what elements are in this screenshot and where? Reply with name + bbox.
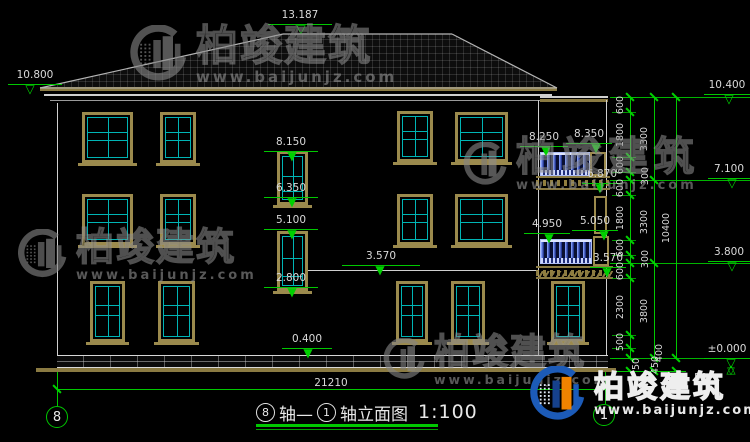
title-axis-from: 8: [256, 403, 275, 422]
elevation-marker-label: 5.050: [572, 216, 618, 228]
elevation-marker-triangle: ▼: [541, 145, 550, 157]
dim-segment-label: 300: [641, 250, 651, 268]
dim-segment-label: 600: [616, 155, 626, 173]
elevation-marker-triangle: ▼: [287, 228, 296, 240]
drawing-title: 8 轴— 1 轴立面图 1:100: [256, 401, 478, 423]
cad-elevation-drawing: 21210 8 1 8 轴— 1 轴立面图 1:100 柏竣建筑 www.bai…: [0, 0, 750, 442]
elevation-marker-triangle: ▼: [544, 232, 553, 244]
dim-total-label: 10400: [662, 212, 672, 242]
dim-chain-line: [654, 97, 655, 358]
elevation-marker-triangle: ▼: [602, 266, 611, 278]
elevation-marker-triangle: ▼: [591, 142, 600, 154]
elevation-marker-triangle: ▼: [287, 150, 296, 162]
brand-website: www.baijunjz.com: [594, 403, 750, 418]
elevation-marker-label: 7.100: [708, 164, 750, 176]
dim-segment-label: 3300: [640, 209, 650, 233]
elevation-marker-triangle: ▽: [727, 260, 736, 272]
brand-name: 柏竣建筑: [594, 373, 750, 403]
dim-segment-label: 3300: [640, 126, 650, 150]
elevation-marker-label: 5.100: [264, 215, 318, 227]
dim-chain-line: [676, 97, 677, 358]
dim-segment-label: 600: [616, 95, 626, 113]
elevation-marker-label: 13.187: [268, 10, 332, 22]
title-axis-to: 1: [317, 403, 336, 422]
elevation-marker-triangle: ▼: [599, 229, 608, 241]
dim-segment-label: 600: [616, 178, 626, 196]
elevation-marker-label: 6.350: [264, 183, 318, 195]
elevation-marker-triangle: ▼: [287, 286, 296, 298]
elevation-marker-triangle: ▼: [375, 264, 384, 276]
elevation-marker-label: 3.570: [342, 251, 420, 263]
elevation-marker-triangle: ▽: [296, 23, 305, 35]
dim-segment-label: 1800: [616, 205, 626, 229]
elevation-marker-label: 3.800: [708, 247, 750, 259]
elevation-marker-line: [8, 84, 62, 85]
elevation-marker-triangle: ▽: [724, 93, 733, 105]
elevation-marker-triangle: ▼: [303, 347, 312, 359]
elevation-marker-triangle: ▼: [287, 196, 296, 208]
dim-segment-label: 1800: [616, 122, 626, 146]
elevation-marker-label: 8.350: [566, 129, 612, 141]
elevation-marker-label: 8.250: [520, 132, 568, 144]
dim-segment-label: 500: [616, 332, 626, 350]
title-scale: 1:100: [418, 401, 478, 423]
dim-segment-label: 300: [641, 167, 651, 185]
brand-logo-icon: [528, 366, 586, 424]
elevation-marker-line: [572, 230, 618, 231]
elevation-marker-label: 2.800: [264, 273, 318, 285]
dim-segment-label: 600: [616, 261, 626, 279]
elevation-marker-line: [566, 143, 612, 144]
dim-segment-label: 600: [616, 238, 626, 256]
elevation-marker-triangle: ▼: [595, 182, 604, 194]
dim-segment-label: 2300: [616, 294, 626, 318]
elevation-marker-label: ±0.000: [704, 344, 750, 356]
dim-segment-label: 3800: [640, 298, 650, 322]
elevation-marker-triangle: ▽: [727, 177, 736, 189]
dim-chain-line: [630, 97, 631, 358]
elevation-marker-label: 10.400: [704, 80, 750, 92]
elevation-marker-label: 0.400: [282, 334, 332, 346]
elevation-marker-label: 8.150: [264, 137, 318, 149]
elevation-marker-label: 4.950: [524, 219, 570, 231]
elevation-marker-label: 10.800: [8, 70, 62, 82]
brand-logo-footer: 柏竣建筑 www.baijunjz.com: [528, 366, 750, 424]
elevation-marker-triangle: ▽: [25, 83, 34, 95]
title-mid: 轴—: [279, 400, 313, 425]
title-tail: 轴立面图: [340, 400, 408, 425]
